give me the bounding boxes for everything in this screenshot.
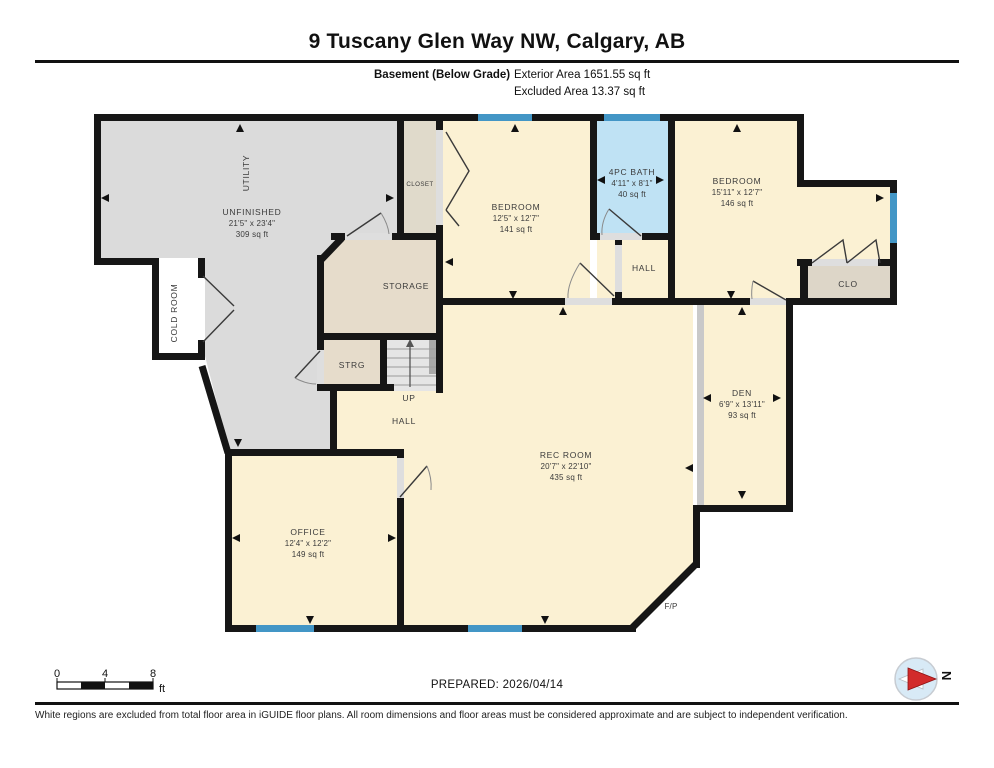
prepared-date: PREPARED: 2026/04/14	[0, 679, 994, 691]
label-storage: STORAGE	[383, 281, 429, 291]
label-bath-area: 40 sq ft	[618, 190, 646, 199]
label-bedroom1-area: 141 sq ft	[500, 225, 533, 234]
label-office-area: 149 sq ft	[292, 550, 325, 559]
den-knee-wall	[697, 305, 704, 505]
label-bedroom2-area: 146 sq ft	[721, 199, 754, 208]
exterior-cutout-left	[94, 258, 159, 365]
room-cold-room	[155, 258, 205, 360]
label-office-dims: 12'4" x 12'2"	[285, 539, 331, 548]
label-bedroom1-dims: 12'5" x 12'7"	[493, 214, 539, 223]
label-up: UP	[402, 393, 415, 403]
label-rec-area: 435 sq ft	[550, 473, 583, 482]
label-rec-dims: 20'7" x 22'10"	[540, 462, 591, 471]
room-fills	[94, 121, 890, 625]
label-unfinished-area: 309 sq ft	[236, 230, 269, 239]
label-utility: UTILITY	[241, 155, 251, 192]
label-den-dims: 6'9" x 13'11"	[719, 400, 765, 409]
label-clo: CLO	[838, 279, 858, 289]
label-cold-room: COLD ROOM	[169, 284, 179, 343]
window-icon	[256, 625, 314, 632]
label-hall-lower: HALL	[392, 416, 416, 426]
label-den-area: 93 sq ft	[728, 411, 756, 420]
label-bedroom2: BEDROOM	[713, 176, 762, 186]
window-icon	[604, 114, 660, 121]
label-fireplace: F/P	[664, 602, 677, 611]
room-closet	[404, 121, 436, 233]
label-den: DEN	[732, 388, 752, 398]
footer-divider	[35, 702, 959, 705]
label-bedroom1: BEDROOM	[492, 202, 541, 212]
label-rec: REC ROOM	[540, 450, 592, 460]
label-unfinished-dims: 21'5" x 23'4"	[229, 219, 275, 228]
label-closet: CLOSET	[406, 181, 433, 188]
label-office: OFFICE	[290, 527, 325, 537]
label-hall-upper: HALL	[632, 263, 656, 273]
label-strg: STRG	[339, 360, 365, 370]
label-bedroom2-dims: 15'11" x 12'7"	[712, 188, 763, 197]
window-icon	[468, 625, 522, 632]
label-bath-dims: 4'11" x 8'1"	[611, 179, 652, 188]
window-icon	[478, 114, 532, 121]
window-icon	[890, 193, 897, 243]
label-unfinished: UNFINISHED	[223, 207, 282, 217]
label-bath: 4PC BATH	[609, 167, 656, 177]
disclaimer-text: White regions are excluded from total fl…	[35, 710, 848, 721]
stairs	[387, 337, 436, 391]
floorplan-canvas: UTILITY UNFINISHED 21'5" x 23'4" 309 sq …	[0, 0, 994, 768]
